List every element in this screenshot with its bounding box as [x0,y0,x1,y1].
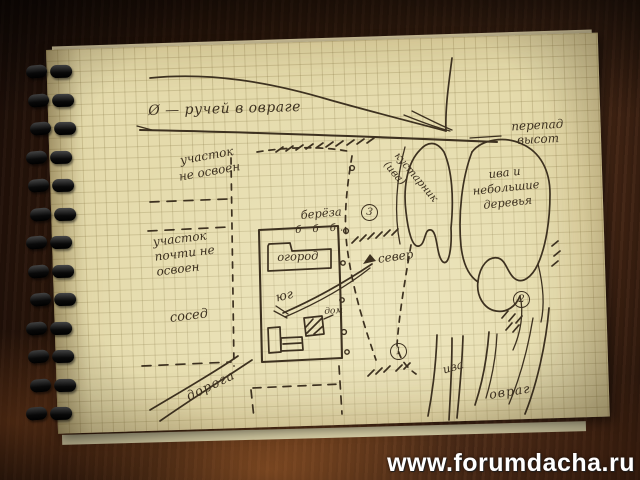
center-plot [259,226,342,362]
photo-scene: Ø — ручей в овраге перепад высот участок… [0,0,640,480]
arrow-line [283,264,372,313]
plot-divider-1 [150,199,228,202]
ravine-finger-2 [449,338,452,420]
watermark: www.forumdacha.ru [387,449,635,478]
hatch-row-bottom [368,363,410,376]
label-elevation: перепад высот [501,117,574,148]
top-boundary-dashed [257,148,347,152]
label-house: дом [324,306,343,317]
plot-boundaries-dashed [142,148,416,418]
label-small-trees: ива и небольшие деревья [461,161,551,215]
ravine-top-strand [404,115,450,131]
hatch-bay [502,311,522,332]
hatch-right-edge [552,241,560,266]
ravine-descender [446,58,452,131]
terrain-lines [137,58,501,142]
trees-descend-2 [538,264,543,322]
lower-plot-dashed [251,366,342,418]
plot-divider-3 [142,362,231,366]
ravine-finger-1 [428,335,437,416]
arrow-head [363,254,376,264]
elevation-leader [470,136,501,138]
map-drawing [0,0,640,480]
shed-outline [304,316,324,336]
hatch-row-mid [352,229,398,243]
ravine-finger-3 [457,336,463,418]
plot-outline [259,226,342,362]
ravine-finger-6 [525,308,549,414]
house-outline [268,327,303,353]
hatch-row-top [276,138,374,152]
marker-2: 2 [513,291,530,308]
label-garden: огород [277,249,319,264]
stream-line [140,130,497,142]
